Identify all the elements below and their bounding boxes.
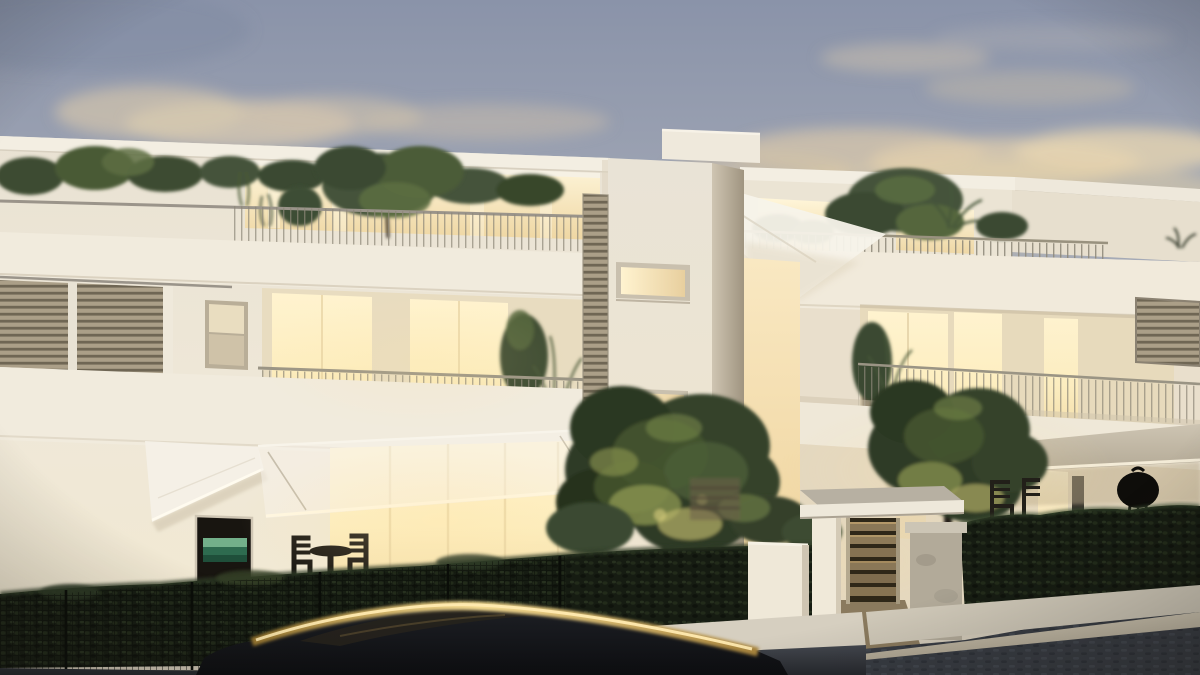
vignette bbox=[0, 0, 1200, 675]
render-canvas bbox=[0, 0, 1200, 675]
architectural-render bbox=[0, 0, 1200, 675]
